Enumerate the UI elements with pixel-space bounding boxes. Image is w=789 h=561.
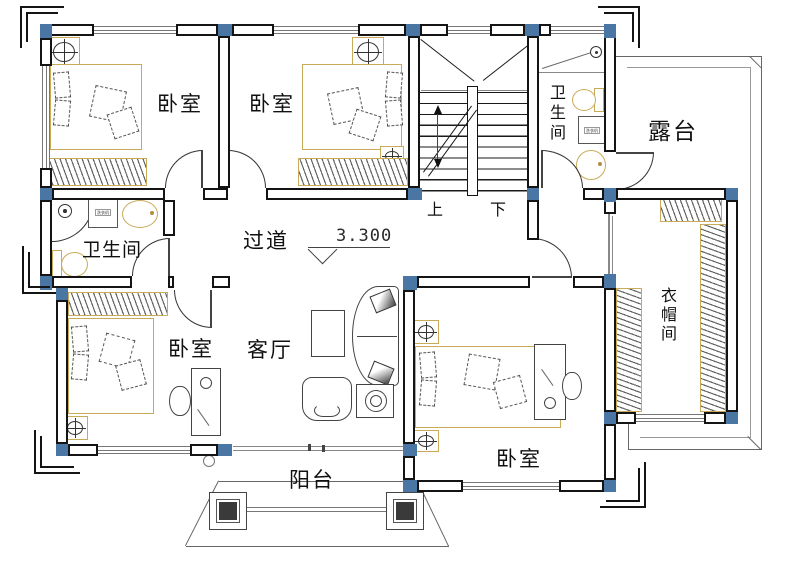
sink xyxy=(122,200,158,228)
window xyxy=(551,26,604,34)
wall xyxy=(212,276,230,288)
wall xyxy=(726,200,738,412)
terrace-parapet-top xyxy=(616,56,762,57)
stair-divider xyxy=(467,86,478,196)
wall xyxy=(704,412,726,424)
wall xyxy=(604,200,616,214)
door-arc-bedroom-bl xyxy=(174,290,212,328)
pillow xyxy=(385,71,403,98)
wall xyxy=(604,36,616,152)
room-label-living: 客厅 xyxy=(247,334,293,364)
wall xyxy=(583,188,604,200)
desk-lamp-icon xyxy=(544,397,556,409)
terrace-inner-line-bottom xyxy=(640,437,750,438)
room-label-closet: 衣帽间 xyxy=(655,287,679,344)
wardrobe-rack xyxy=(616,288,642,412)
wall xyxy=(190,444,218,456)
room-label-bedroom-tm: 卧室 xyxy=(249,88,295,118)
terrace-miter-top-right xyxy=(749,56,761,68)
desk xyxy=(191,368,221,436)
column xyxy=(726,188,738,200)
door-leaf xyxy=(532,276,572,278)
lamp-icon xyxy=(418,325,434,339)
wall xyxy=(527,36,539,188)
room-label-balcony: 阳台 xyxy=(289,464,335,494)
elevation-value: 3.300 xyxy=(336,226,392,246)
wardrobe-rack xyxy=(68,292,168,316)
chair xyxy=(562,372,582,400)
door-arc-bedroom-br xyxy=(532,238,572,278)
column xyxy=(403,444,417,456)
wall xyxy=(408,36,420,188)
wall xyxy=(358,24,406,36)
wardrobe-rack xyxy=(660,198,722,222)
wall xyxy=(417,276,530,288)
wall xyxy=(616,412,636,424)
wall xyxy=(163,200,175,236)
window xyxy=(448,26,490,34)
porch-post-right-core xyxy=(396,502,414,520)
wall xyxy=(168,276,174,288)
wall xyxy=(176,24,218,36)
porch-post-left-core xyxy=(219,502,237,520)
room-label-bedroom-bl: 卧室 xyxy=(168,333,214,363)
desk-lamp-icon xyxy=(200,377,212,389)
nightstand xyxy=(352,37,384,67)
washing-machine: 洗衣机 xyxy=(88,198,118,228)
column xyxy=(56,288,68,300)
terrace-inner-line-top xyxy=(627,67,751,68)
stair-arrow-down-icon xyxy=(434,159,442,168)
wall xyxy=(539,24,551,36)
room-label-terrace: 露台 xyxy=(648,112,698,146)
pillow xyxy=(71,353,89,380)
terrace-parapet-bottom xyxy=(628,449,761,450)
porch-rail-1 xyxy=(247,507,387,508)
wall xyxy=(403,290,415,444)
pen-icon xyxy=(197,409,209,426)
balcony-slider-line-1 xyxy=(233,446,403,447)
porch-rail-2 xyxy=(247,511,387,512)
wall xyxy=(52,276,132,288)
wall xyxy=(490,24,525,36)
cloakroom-slider-line-1 xyxy=(608,212,610,274)
bath2-shelf-line xyxy=(539,72,604,73)
column xyxy=(406,24,420,36)
room-label-bedroom-tl: 卧室 xyxy=(157,88,203,118)
floor-plan: 洗衣机 洗衣机 xyxy=(0,0,789,561)
lamp-icon xyxy=(357,42,379,62)
column xyxy=(604,412,616,424)
room-label-corridor: 过道 xyxy=(243,225,289,255)
nightstand xyxy=(413,320,439,344)
wardrobe-rack xyxy=(47,158,147,186)
column xyxy=(403,480,417,492)
column xyxy=(604,188,616,202)
corner-ornament xyxy=(20,6,64,48)
window xyxy=(636,414,704,422)
balcony-slider-line-2 xyxy=(233,450,403,451)
corner-ornament xyxy=(600,462,646,508)
corner-ornament xyxy=(22,246,56,294)
armchair-seat-curve xyxy=(314,404,340,417)
desk xyxy=(534,344,566,420)
wall xyxy=(203,188,228,200)
stair-arrow-shaft xyxy=(437,114,438,160)
washer-label: 洗衣机 xyxy=(584,127,600,134)
terrace-inner-line-right xyxy=(750,67,751,438)
column xyxy=(403,276,417,290)
sofa-divider xyxy=(357,336,397,337)
pillow xyxy=(419,379,437,406)
column xyxy=(604,274,616,288)
column xyxy=(408,188,422,200)
wall xyxy=(218,36,230,188)
chair xyxy=(169,386,191,416)
wardrobe-rack xyxy=(298,158,408,186)
wall xyxy=(616,188,726,200)
balcony-slider-handle-2 xyxy=(322,445,325,452)
wall xyxy=(604,288,616,412)
elevation-marker-icon xyxy=(308,235,338,265)
door-leaf xyxy=(201,150,203,188)
wall xyxy=(403,456,415,480)
column xyxy=(527,188,539,200)
window xyxy=(98,446,190,454)
shower-head-icon xyxy=(58,204,72,218)
lamp-icon xyxy=(418,435,434,447)
wall xyxy=(266,188,408,200)
stair-arrow-up-icon xyxy=(434,105,442,114)
wall xyxy=(52,188,165,200)
window xyxy=(274,26,358,34)
stair-flight-right xyxy=(478,92,527,196)
door-leaf xyxy=(616,152,654,154)
stair-landing-line xyxy=(421,90,537,91)
door-leaf xyxy=(210,290,212,328)
door-arc-terrace xyxy=(616,152,654,190)
wall xyxy=(56,300,68,444)
column xyxy=(218,444,232,456)
balcony-slider-handle-1 xyxy=(308,444,311,451)
door-arc-bedroom-tl xyxy=(165,150,203,188)
stair-label-down: 下 xyxy=(490,196,508,220)
cloak-eave-left-line xyxy=(628,424,629,449)
wardrobe-rack xyxy=(700,224,726,412)
door-arc-bath-tr xyxy=(541,150,583,188)
wall xyxy=(527,200,539,240)
pillow xyxy=(53,99,71,126)
stair-label-up: 上 xyxy=(427,196,445,220)
room-label-bathroom-tr: 卫生间 xyxy=(544,84,568,144)
pillow xyxy=(53,71,71,98)
door-arc-bedroom-tm xyxy=(228,150,266,188)
window xyxy=(94,26,176,34)
coffee-table xyxy=(311,310,345,357)
door-leaf xyxy=(541,150,543,188)
pillow xyxy=(419,351,437,378)
column xyxy=(726,412,738,424)
washing-machine: 洗衣机 xyxy=(578,116,606,144)
porch-bottom-line xyxy=(186,546,449,547)
window xyxy=(42,66,50,168)
wall xyxy=(417,480,463,492)
terrace-parapet-right xyxy=(761,56,762,450)
cloakroom-slider-line-2 xyxy=(612,216,614,274)
window xyxy=(463,482,559,490)
column xyxy=(218,24,232,36)
side-table-ring-inner xyxy=(370,395,382,407)
pen-icon xyxy=(541,369,553,386)
side-table xyxy=(356,384,394,418)
wall xyxy=(420,24,448,36)
column xyxy=(40,188,52,200)
armchair xyxy=(302,377,352,421)
wall xyxy=(232,24,274,36)
washer-label: 洗衣机 xyxy=(95,209,111,216)
column xyxy=(525,24,539,36)
wall xyxy=(559,480,604,492)
pillow xyxy=(385,99,403,126)
corner-ornament xyxy=(598,6,640,48)
corner-ornament xyxy=(34,430,80,474)
room-label-bedroom-br: 卧室 xyxy=(496,443,542,473)
wall xyxy=(573,276,604,288)
stair-landing-diagonal-left xyxy=(420,39,474,82)
door-leaf xyxy=(168,238,170,276)
room-label-bathroom-left: 卫生间 xyxy=(82,235,142,262)
balcony-drain xyxy=(203,455,215,467)
pillow xyxy=(71,325,89,352)
toilet-bowl xyxy=(572,89,596,111)
wall xyxy=(40,168,52,188)
